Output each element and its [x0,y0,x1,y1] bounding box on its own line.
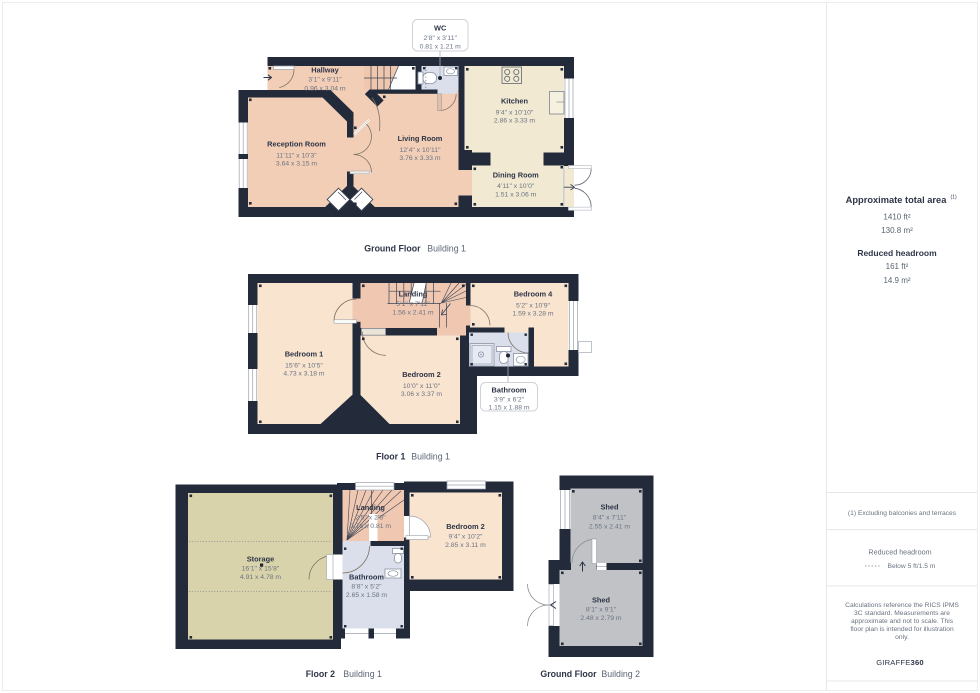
svg-text:2’5" x 2’8": 2’5" x 2’8" [355,515,386,522]
svg-text:2.48 x 2.79 m: 2.48 x 2.79 m [580,615,622,622]
svg-text:Building 1: Building 1 [427,243,466,253]
svg-text:3.06 x 3.37 m: 3.06 x 3.37 m [401,391,443,398]
svg-text:Reception Room: Reception Room [267,139,326,148]
svg-text:Ground Floor: Ground Floor [364,243,421,253]
svg-text:1.51 x 3.06 m: 1.51 x 3.06 m [495,192,537,199]
svg-text:Approximate total area: Approximate total area [846,195,948,205]
svg-text:Shed: Shed [592,596,611,605]
svg-text:Reduced headroom: Reduced headroom [857,248,937,258]
svg-text:0.96 x 3.04 m: 0.96 x 3.04 m [304,85,346,92]
svg-text:Shed: Shed [600,503,619,512]
svg-text:0.76 x 0.81 m: 0.76 x 0.81 m [350,523,392,530]
svg-text:only.: only. [895,634,909,641]
svg-text:Landing: Landing [399,290,428,299]
svg-text:3C standard. Measurements are: 3C standard. Measurements are [854,610,950,617]
svg-text:Dining Room: Dining Room [493,170,539,179]
svg-text:Building 2: Building 2 [601,669,640,679]
svg-text:Storage: Storage [247,555,275,564]
svg-text:Calculations reference the RIC: Calculations reference the RICS IPMS [845,602,959,609]
svg-text:4.73 x 3.18 m: 4.73 x 3.18 m [283,371,325,378]
svg-text:4.91 x 4.78 m: 4.91 x 4.78 m [240,574,282,581]
svg-text:9’4" x 10’2": 9’4" x 10’2" [449,533,484,540]
svg-text:5’2" x 10’9": 5’2" x 10’9" [516,302,551,309]
svg-text:Bathroom: Bathroom [349,572,384,581]
svg-text:Bedroom 2: Bedroom 2 [402,370,441,379]
svg-text:4’11" x 10’0": 4’11" x 10’0" [497,183,535,190]
svg-text:8’1" x 9’1": 8’1" x 9’1" [586,606,617,613]
svg-text:3.76 x 3.33 m: 3.76 x 3.33 m [399,155,441,162]
svg-text:14.9 m²: 14.9 m² [883,276,910,285]
svg-text:Floor 2: Floor 2 [306,669,335,679]
svg-text:Hallway: Hallway [311,65,339,74]
svg-text:1410 ft²: 1410 ft² [883,212,910,221]
svg-text:5’1" x 7’11": 5’1" x 7’11" [396,301,430,308]
svg-text:1.56 x 2.41 m: 1.56 x 2.41 m [392,309,434,316]
svg-text:9’4" x 10’10": 9’4" x 10’10" [496,110,534,117]
svg-text:approximate and not to scale.: approximate and not to scale. This [851,618,954,625]
svg-text:Bedroom 1: Bedroom 1 [285,350,324,359]
svg-text:Bedroom 2: Bedroom 2 [446,522,485,531]
svg-text:(1): (1) [951,195,957,201]
svg-text:Floor 1: Floor 1 [376,452,405,462]
svg-text:(1) Excluding balconies and te: (1) Excluding balconies and terraces [848,510,957,517]
svg-text:3’9" x 6’2": 3’9" x 6’2" [494,396,525,403]
svg-text:0.81 x 1.21 m: 0.81 x 1.21 m [420,44,462,51]
svg-text:2.85 x 3.11 m: 2.85 x 3.11 m [445,542,486,549]
svg-text:Bathroom: Bathroom [492,386,527,395]
svg-text:2.86 x 3.33 m: 2.86 x 3.33 m [494,118,536,125]
svg-text:8’4" x 7’11": 8’4" x 7’11" [593,514,627,521]
svg-text:3.64 x 3.15 m: 3.64 x 3.15 m [276,160,318,167]
svg-text:11’11" x 10’3": 11’11" x 10’3" [276,152,317,159]
svg-text:Building 1: Building 1 [411,452,450,462]
svg-text:Reduced headroom: Reduced headroom [868,548,931,557]
svg-text:Ground Floor: Ground Floor [540,669,597,679]
svg-text:WC: WC [434,24,447,33]
svg-text:2’8" x 3’11": 2’8" x 3’11" [423,35,457,42]
svg-text:12’4" x 10’11": 12’4" x 10’11" [400,147,442,154]
svg-text:Below 5 ft/1.5 m: Below 5 ft/1.5 m [888,563,936,570]
svg-text:15’6" x 10’5": 15’6" x 10’5" [285,362,323,369]
svg-text:Living Room: Living Room [398,134,443,143]
svg-text:1.59 x 3.28 m: 1.59 x 3.28 m [512,311,554,318]
svg-text:3’1" x 9’11": 3’1" x 9’11" [308,77,342,84]
svg-text:Landing: Landing [356,503,385,512]
svg-text:2.55 x 2.41 m: 2.55 x 2.41 m [589,523,631,530]
svg-text:Kitchen: Kitchen [501,97,529,106]
svg-text:Bedroom 4: Bedroom 4 [514,290,553,299]
svg-text:1.15 x 1.88 m: 1.15 x 1.88 m [488,404,530,411]
svg-text:161 ft²: 161 ft² [886,262,909,271]
svg-text:130.8 m²: 130.8 m² [881,226,913,235]
svg-text:floor plan is intended for ill: floor plan is intended for illustration [850,626,954,633]
svg-text:2.65 x 1.58 m: 2.65 x 1.58 m [346,592,388,599]
svg-text:10’0" x 11’0": 10’0" x 11’0" [403,383,441,390]
svg-text:GIRAFFE360: GIRAFFE360 [876,658,924,667]
svg-text:8’8" x 5’2": 8’8" x 5’2" [351,584,382,591]
svg-text:Building 1: Building 1 [343,669,382,679]
